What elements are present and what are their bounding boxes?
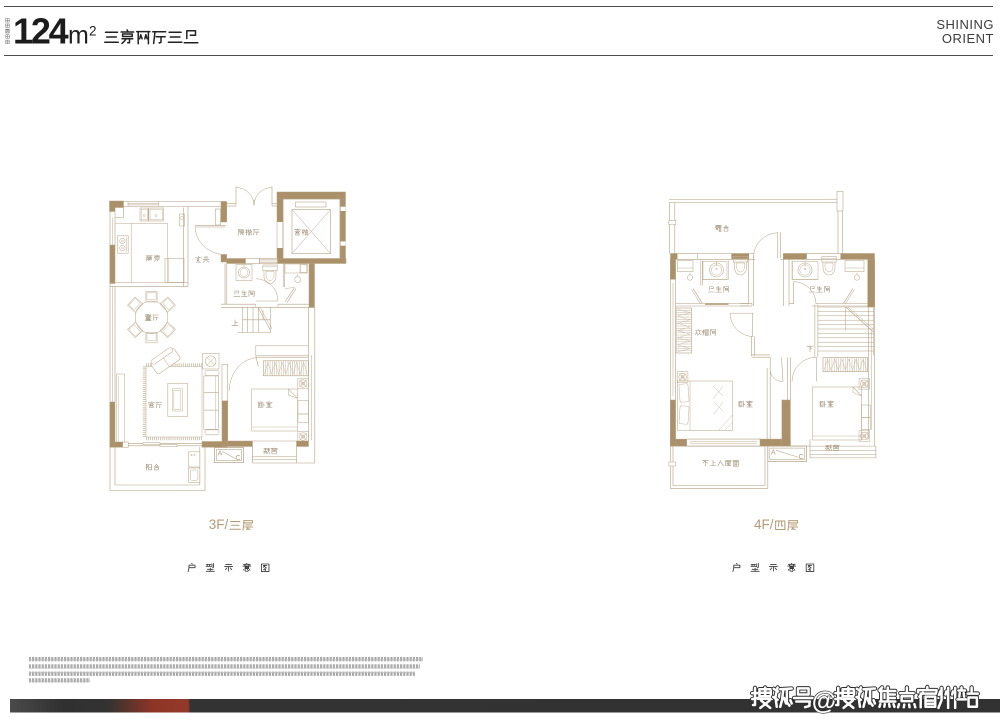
svg-text:A: A — [218, 451, 223, 458]
svg-text:2: 2 — [89, 24, 97, 39]
svg-text:C: C — [235, 455, 240, 462]
svg-text:@: @ — [812, 688, 836, 716]
svg-text:SHINING: SHINING — [936, 17, 994, 32]
svg-text:C: C — [799, 454, 804, 461]
svg-text:3F/: 3F/ — [209, 517, 229, 532]
svg-text:ORIENT: ORIENT — [942, 31, 994, 46]
svg-text:m: m — [68, 22, 89, 50]
svg-text:A: A — [771, 449, 776, 456]
svg-text:4F/: 4F/ — [754, 517, 774, 532]
svg-text:124: 124 — [13, 11, 69, 52]
